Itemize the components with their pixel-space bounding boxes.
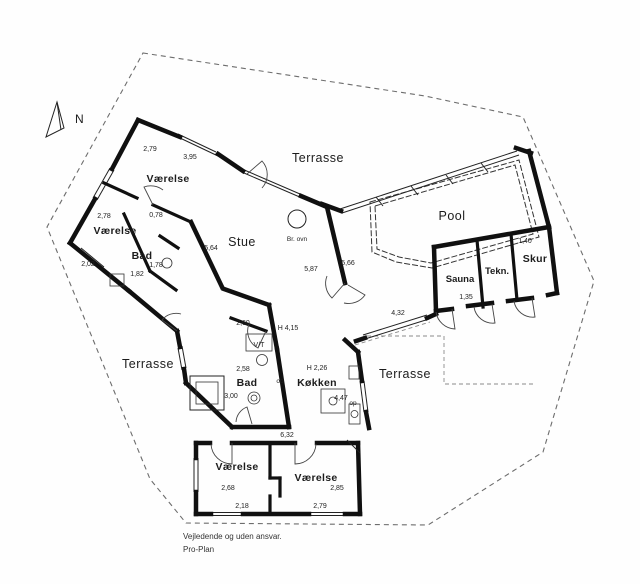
wood-stove-icon bbox=[288, 210, 306, 228]
label-op-a: op bbox=[276, 378, 284, 385]
measurement-1-35: 1,35 bbox=[459, 294, 473, 301]
north-label: N bbox=[75, 112, 84, 126]
measurement-2-18: 2,18 bbox=[235, 503, 249, 510]
measurement-1-78: 1,78 bbox=[149, 262, 163, 269]
room-label-pool: Pool bbox=[438, 209, 465, 223]
measurement-2-79: 2,79 bbox=[143, 146, 157, 153]
room-label-vaerelse-nw: Værelse bbox=[147, 173, 190, 185]
room-label-vaerelse-s1: Værelse bbox=[216, 461, 259, 473]
disclaimer-text: Vejledende og uden ansvar. bbox=[183, 532, 282, 541]
measurement-h-4-15: H 4,15 bbox=[278, 325, 299, 332]
counter-icon bbox=[349, 366, 359, 379]
sink-icon bbox=[248, 392, 260, 404]
room-label-vaerelse-w: Værelse bbox=[94, 225, 137, 237]
measurement-2-02: 2,02 bbox=[81, 261, 95, 268]
exterior-walls bbox=[70, 120, 557, 514]
measurement-0-78: 0,78 bbox=[149, 212, 163, 219]
measurement-1-82: 1,82 bbox=[130, 271, 144, 278]
room-label-koekken: Køkken bbox=[297, 377, 337, 389]
measurement-2-58: 2,58 bbox=[236, 366, 250, 373]
room-label-vaerelse-s2: Værelse bbox=[295, 472, 338, 484]
measurement-2-85: 2,85 bbox=[330, 485, 344, 492]
label-vt: V/T bbox=[254, 342, 266, 349]
measurement-4-32: 4,32 bbox=[391, 310, 405, 317]
toilet-icon bbox=[257, 355, 268, 366]
labels: N Terrasse 2,79 3,95 Værelse 2,78 Værels… bbox=[75, 112, 547, 554]
room-label-tekn: Tekn. bbox=[485, 266, 509, 277]
room-label-terrasse-right: Terrasse bbox=[379, 367, 431, 381]
measurement-3-00: 3,00 bbox=[224, 393, 238, 400]
measurement-h-2-26: H 2,26 bbox=[307, 365, 328, 372]
floor-plan-drawing: N Terrasse 2,79 3,95 Værelse 2,78 Værels… bbox=[0, 0, 640, 584]
measurement-5-87: 5,87 bbox=[304, 266, 318, 273]
room-label-terrasse-top: Terrasse bbox=[292, 151, 344, 165]
measurement-2-78: 2,78 bbox=[97, 213, 111, 220]
toilet2-icon bbox=[162, 258, 172, 268]
room-label-terrasse-left: Terrasse bbox=[122, 357, 174, 371]
measurement-1-40: 1,40 bbox=[518, 238, 532, 245]
north-arrow-icon bbox=[46, 102, 64, 137]
label-br-ovn: Br. ovn bbox=[287, 236, 308, 243]
windows bbox=[78, 134, 519, 516]
room-label-bad-w: Bad bbox=[132, 250, 153, 262]
measurement-4-47: 4,47 bbox=[334, 395, 348, 402]
label-op-b: op bbox=[349, 400, 357, 407]
measurement-2-79b: 2,79 bbox=[313, 503, 327, 510]
floor-plan-page: N Terrasse 2,79 3,95 Værelse 2,78 Værels… bbox=[0, 0, 640, 584]
measurement-5-64: 5,64 bbox=[204, 245, 218, 252]
room-label-skur: Skur bbox=[523, 253, 548, 265]
measurement-3-95: 3,95 bbox=[183, 154, 197, 161]
measurement-5-66: 5,66 bbox=[341, 260, 355, 267]
measurement-6-32: 6,32 bbox=[280, 432, 294, 439]
room-label-stue: Stue bbox=[228, 235, 256, 249]
room-label-bad-center: Bad bbox=[237, 377, 258, 389]
measurement-2-60: 2,60 bbox=[236, 320, 250, 327]
door-arcs bbox=[144, 161, 535, 464]
brand-text: Pro-Plan bbox=[183, 545, 214, 554]
measurement-2-68: 2,68 bbox=[221, 485, 235, 492]
room-label-sauna: Sauna bbox=[446, 274, 475, 285]
